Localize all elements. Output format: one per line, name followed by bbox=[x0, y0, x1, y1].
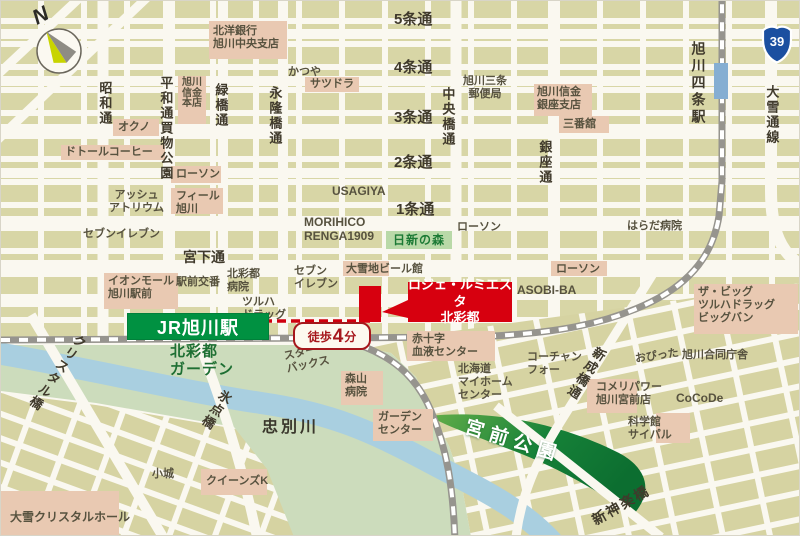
street-2jo-dori: 2条通 bbox=[394, 154, 432, 172]
poi-asobi-ba: ASOBI-BA bbox=[517, 283, 576, 297]
poi-moriyama-hospital: 森山 病院 bbox=[345, 373, 367, 399]
poi-doutor-coffee: ドトールコーヒー bbox=[65, 146, 153, 159]
poi-komeri-power-miyamae: コメリパワー 旭川宮前店 bbox=[596, 381, 662, 407]
walk-time-badge: 徒歩 4 分 bbox=[293, 322, 371, 350]
street-midoribashi-dori: 緑橋通 bbox=[213, 83, 228, 128]
poi-usagiya: USAGIYA bbox=[332, 184, 386, 198]
poi-morihico-renga1909: MORIHICO RENGA1909 bbox=[304, 215, 374, 243]
poi-seven-eleven-2: セブン イレブン bbox=[294, 265, 338, 291]
street-miyashita-dori: 宮下通 bbox=[183, 249, 225, 266]
walk-time-prefix: 徒歩 bbox=[308, 328, 332, 345]
walk-time-number: 4 bbox=[333, 327, 344, 346]
street-1jo-dori: 1条通 bbox=[396, 201, 434, 219]
property-name-line1: ロジェ・ルミエスタ bbox=[408, 277, 512, 311]
station-asahikawa-yojo: 旭川四条駅 bbox=[690, 41, 707, 126]
poi-feeeal-asahikawa: フィール 旭川 bbox=[176, 190, 220, 216]
poi-garden-center: ガーデン センター bbox=[378, 411, 422, 437]
bridge-crystal: クリスタル橋 bbox=[25, 331, 89, 414]
park-miyamae: 宮前公園 bbox=[462, 417, 564, 468]
poi-kojo: 小城 bbox=[152, 468, 174, 481]
compass-n-label: N bbox=[29, 5, 54, 29]
bridge-shinkagura: 新神楽橋 bbox=[589, 482, 653, 528]
street-ginza-dori: 銀座通 bbox=[537, 140, 552, 185]
poi-taisetsu-ji-beer-kan: 大雪地ビール館 bbox=[346, 263, 423, 276]
street-chuobashi-dori: 中央橋通 bbox=[440, 87, 455, 147]
bridge-hyoten: 氷点橋 bbox=[197, 386, 234, 432]
poi-asahikawa-godochosha: 旭川合同庁舎 bbox=[682, 349, 748, 362]
river-chubetsu: 忠別川 bbox=[262, 419, 319, 438]
poi-okuno: オクノ bbox=[118, 121, 150, 134]
poi-taisetsu-crystal-hall: 大雪クリスタルホール bbox=[10, 510, 130, 524]
poi-ash-atrium: アッシュ アトリウム bbox=[109, 189, 164, 215]
poi-coach-and-four: コーチャン フォー bbox=[527, 351, 582, 377]
area-kitasaito-garden: 北彩都 ガーデン bbox=[170, 343, 234, 378]
walk-time-suffix: 分 bbox=[344, 328, 356, 345]
street-taisetsu-dori-line: 大雪通線 bbox=[764, 85, 779, 145]
poi-asahikawa-shinkin-ginza: 旭川信金 銀座支店 bbox=[537, 86, 581, 112]
poi-the-big-tsuruha-bigbang: ザ・ビッグ ツルハドラッグ ビッグバン bbox=[698, 286, 775, 325]
street-5jo-dori: 5条通 bbox=[394, 11, 432, 29]
poi-ekimae-koban: 駅前交番 bbox=[176, 276, 220, 289]
street-showa-dori: 昭和通 bbox=[97, 81, 112, 126]
poi-hokkaido-myhome-center: 北海道 マイホーム センター bbox=[458, 363, 513, 402]
poi-hokuyo-bank: 北洋銀行 旭川中央支店 bbox=[213, 25, 279, 51]
poi-seven-eleven-1: セブンイレブン bbox=[83, 228, 160, 241]
street-heiwadori-kaimono-koen: 平和通買物公園 bbox=[158, 76, 173, 181]
property-callout: ロジェ・ルミエスタ 北彩都 bbox=[408, 282, 512, 322]
compass-north-icon: N bbox=[13, 5, 97, 83]
route-39-shield-icon: 39 bbox=[759, 25, 795, 65]
poi-lawson-2: ローソン bbox=[457, 221, 501, 234]
jr-asahikawa-station-banner: JR旭川駅 bbox=[127, 313, 269, 340]
property-name-line2: 北彩都 bbox=[440, 310, 479, 327]
poi-queens-k: クイーンズK bbox=[206, 475, 268, 488]
poi-sanbankan: 三番舘 bbox=[563, 118, 596, 131]
street-4jo-dori: 4条通 bbox=[394, 59, 432, 77]
poi-aeon-mall-asahikawa-ekimae: イオンモール 旭川駅前 bbox=[108, 275, 174, 301]
area-nisshin-no-mori: 日新の森 bbox=[386, 231, 452, 249]
poi-opitta: おぴった bbox=[634, 347, 679, 366]
poi-kitasaito-hospital: 北彩都 病院 bbox=[227, 268, 260, 294]
poi-harada-hospital: はらだ病院 bbox=[627, 220, 682, 233]
poi-asahikawa-sanjo-post: 旭川三条 郵便局 bbox=[463, 75, 507, 101]
route-number: 39 bbox=[770, 34, 784, 49]
street-eiryubashi-dori: 永隆橋通 bbox=[267, 86, 282, 146]
poi-satsudora: サツドラ bbox=[310, 78, 354, 91]
poi-kagakukan-sci-pal: 科学館 サイパル bbox=[628, 416, 672, 442]
access-map: 昭和通平和通買物公園緑橋通永隆橋通中央橋通銀座通旭川四条駅大雪通線5条通4条通3… bbox=[0, 0, 800, 536]
poi-redcross-blood-center: 赤十字 血液センター bbox=[412, 333, 478, 359]
poi-cocode: CoCoDe bbox=[676, 391, 723, 405]
street-3jo-dori: 3条通 bbox=[394, 109, 432, 127]
poi-asahikawa-shinkin-honten: 旭川 信金 本店 bbox=[182, 78, 202, 110]
poi-lawson-3: ローソン bbox=[556, 263, 600, 276]
labels-layer: 昭和通平和通買物公園緑橋通永隆橋通中央橋通銀座通旭川四条駅大雪通線5条通4条通3… bbox=[1, 1, 800, 536]
poi-lawson-1: ローソン bbox=[176, 168, 220, 181]
